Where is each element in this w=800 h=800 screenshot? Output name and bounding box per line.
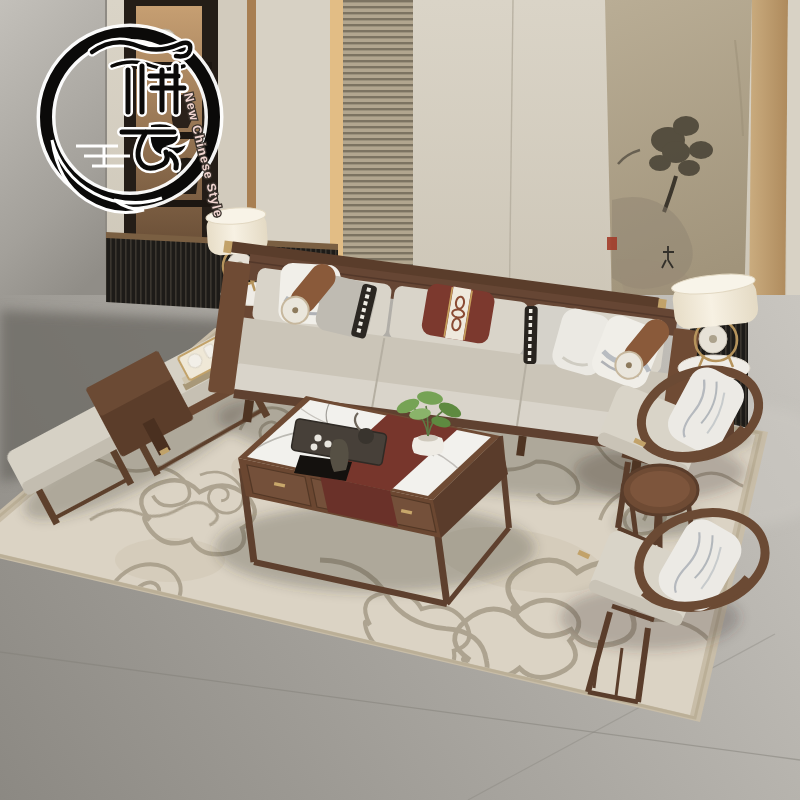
brass-rail-tip [223,240,232,253]
tea-cup [324,440,331,447]
product-photo: New Chinese Style [0,0,800,800]
living-room-scene: New Chinese Style [0,0,800,800]
ink-painting [605,0,752,310]
tea-cup [314,434,321,441]
painting-red-seal [607,237,617,250]
stone-sculpture [330,439,349,472]
teapot [358,428,374,444]
sofa-pillow-maroon [420,282,496,345]
tea-cup [311,444,318,451]
